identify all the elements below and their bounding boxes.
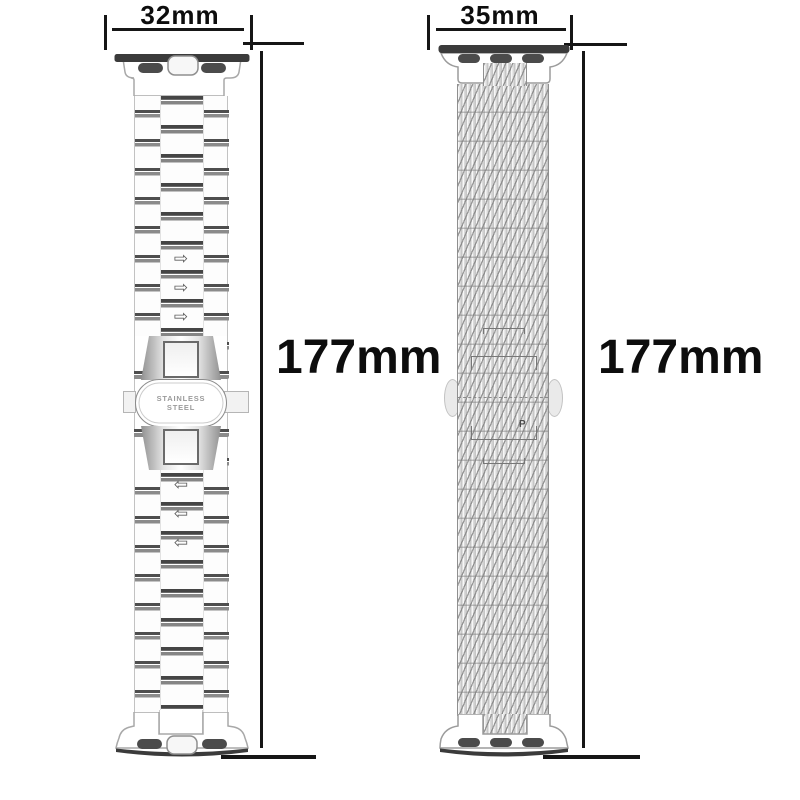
right-band-width-label: 35mm: [440, 0, 560, 31]
right-band-neck-top: [483, 63, 527, 86]
right-length-dimension-line: [582, 51, 585, 748]
right-band-length-label: 177mm: [598, 330, 763, 385]
clasp-upper-plate: [163, 341, 199, 378]
left-band-bottom-connector: [114, 712, 250, 762]
connector-slot-icon: [138, 63, 163, 73]
mesh-clasp-centerline: [458, 397, 548, 398]
mesh-clasp-outline-top: [471, 356, 537, 370]
mesh-mark-letter: P: [519, 419, 526, 430]
link-arrow-right-icon: ⇨: [171, 306, 191, 328]
left-length-dimension-line: [260, 51, 263, 748]
clasp-engraving-line2: STEEL: [167, 403, 195, 412]
connector-bar: [440, 749, 568, 757]
connector-slot-icon: [522, 54, 544, 63]
left-width-tick-left: [104, 15, 107, 50]
connector-tab: [168, 56, 198, 75]
clasp-engraving: STAINLESS STEEL: [135, 379, 227, 427]
connector-bar: [439, 45, 570, 53]
right-width-tick-left: [427, 15, 430, 50]
left-band-width-label: 32mm: [118, 0, 242, 31]
left-band-top-connector: [114, 53, 250, 96]
connector-slot-icon: [137, 739, 162, 749]
link-arrow-left-icon: ⇦: [171, 503, 191, 525]
link-arrow-left-icon: ⇦: [171, 474, 191, 496]
link-arrow-right-icon: ⇨: [171, 277, 191, 299]
connector-slot-icon: [522, 738, 544, 747]
link-arrow-right-icon: ⇨: [171, 248, 191, 270]
right-length-extension-top: [564, 43, 627, 46]
connector-slot-icon: [202, 739, 227, 749]
clasp-engraving-line1: STAINLESS: [157, 394, 206, 403]
right-band-body: [457, 84, 549, 716]
mesh-clasp-outline-top-small: [483, 328, 525, 334]
left-length-extension-top: [243, 42, 304, 45]
product-dimension-diagram: 32mm 177mm 35mm 177mm ⇨ ⇨ ⇨ STAINLESS S: [0, 0, 800, 800]
mesh-clasp-outline-bottom: [471, 426, 537, 440]
right-band-bottom-connector: [438, 714, 570, 762]
connector-tab: [167, 736, 197, 754]
left-band-length-label: 177mm: [276, 330, 441, 385]
clasp-right-wing: [224, 391, 249, 413]
connector-slot-icon: [458, 738, 480, 747]
connector-slot-icon: [490, 54, 512, 63]
mesh-clasp-outline-bottom-small: [483, 458, 525, 464]
connector-slot-icon: [490, 738, 512, 747]
connector-slot-icon: [201, 63, 226, 73]
link-arrow-left-icon: ⇦: [171, 532, 191, 554]
left-width-dimension-line: [112, 28, 244, 31]
connector-slot-icon: [458, 54, 480, 63]
clasp-lower-plate: [163, 429, 199, 465]
right-width-dimension-line: [436, 28, 566, 31]
